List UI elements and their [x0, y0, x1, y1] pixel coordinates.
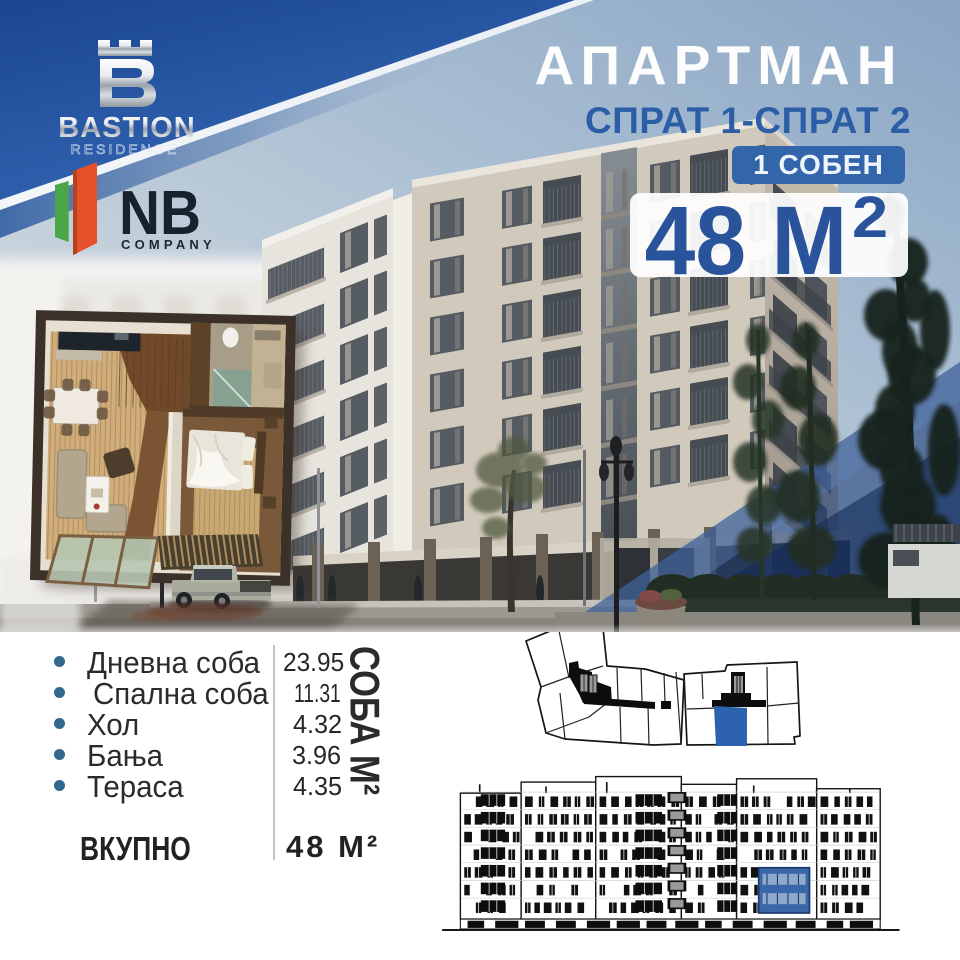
svg-text:RESIDENCE: RESIDENCE	[71, 141, 180, 157]
svg-text:COMPANY: COMPANY	[121, 237, 216, 252]
svg-text:BASTION: BASTION	[58, 112, 196, 144]
